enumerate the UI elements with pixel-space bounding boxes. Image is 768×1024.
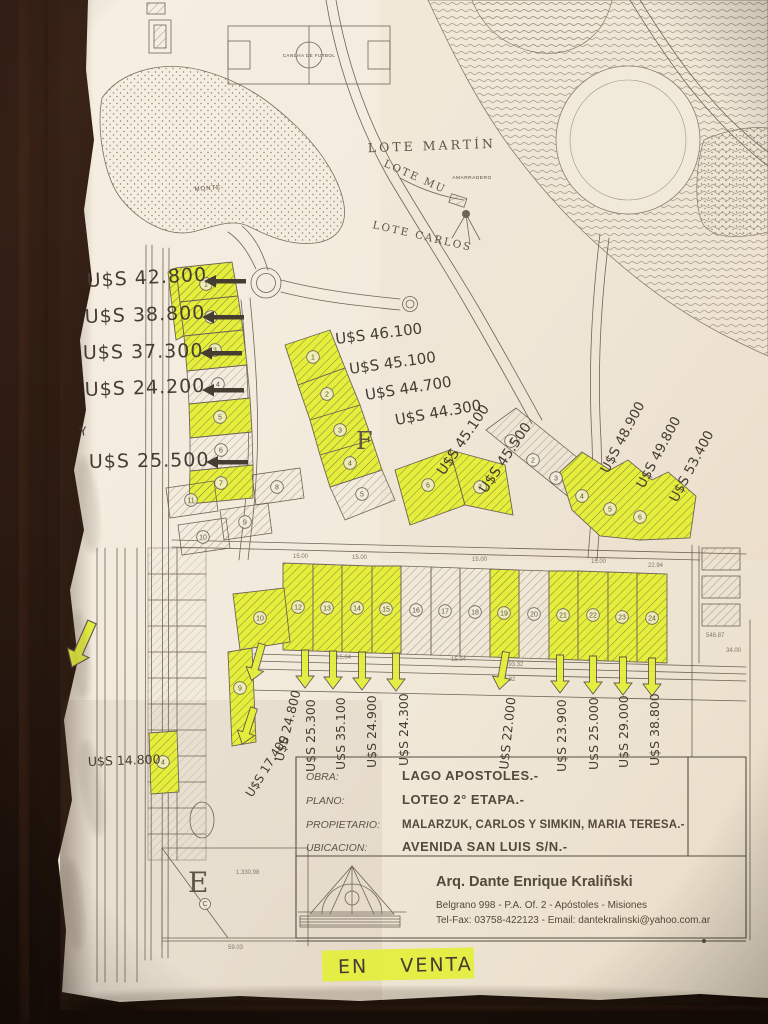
photo-of-plat-map: 1 2 3 4 5 6 7 8 11 9 10 1 2 3 4 5 6 7 1 … [0, 0, 768, 1024]
photo-vignette [0, 0, 768, 1024]
